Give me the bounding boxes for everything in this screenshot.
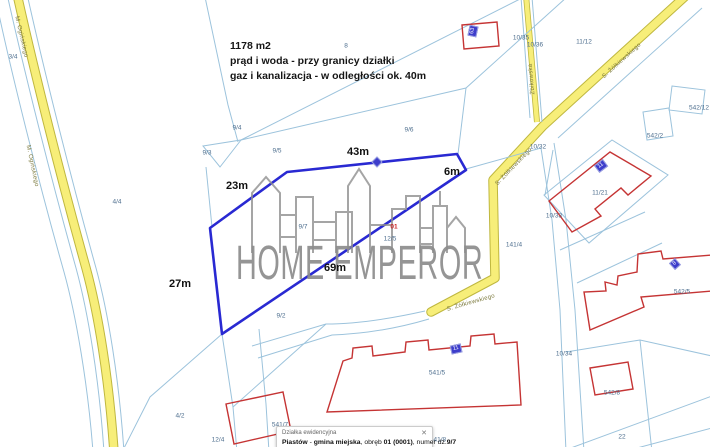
plot-utilities-1: prąd i woda - przy granicy działki xyxy=(230,54,426,69)
popup-description-part: 01 (0001) xyxy=(384,439,413,446)
building-11-21 xyxy=(549,152,651,232)
buildings xyxy=(226,22,710,444)
plot-area: 1178 m2 xyxy=(230,39,426,54)
popup-description: Piastów - gmina miejska, obręb 01 (0001)… xyxy=(282,439,427,446)
plot-note: 1178 m2 prąd i woda - przy granicy dział… xyxy=(230,39,426,84)
popup-description-part: , obręb xyxy=(361,439,384,446)
parcel-info-popup: Działka ewidencyjna ✕ Piastów - gmina mi… xyxy=(276,426,433,447)
plot-utilities-2: gaz i kanalizacja - w odległości ok. 40m xyxy=(230,69,426,84)
building-542-5 xyxy=(584,251,710,330)
building-542-8 xyxy=(590,362,633,395)
popup-description-part: gmina miejska xyxy=(314,439,361,446)
building-541-5 xyxy=(327,334,521,412)
popup-title: Działka ewidencyjna xyxy=(282,430,336,436)
popup-description-part: Piastów xyxy=(282,439,308,446)
watermark-text: HOME EMPEROR xyxy=(236,240,483,288)
cadastral-map-view[interactable]: HOME EMPEROR 1178 m2 prąd i woda - przy … xyxy=(0,0,710,447)
close-icon[interactable]: ✕ xyxy=(421,430,427,437)
popup-description-part: , numer dz. xyxy=(413,439,447,446)
popup-description-part: 9/7 xyxy=(447,439,456,446)
